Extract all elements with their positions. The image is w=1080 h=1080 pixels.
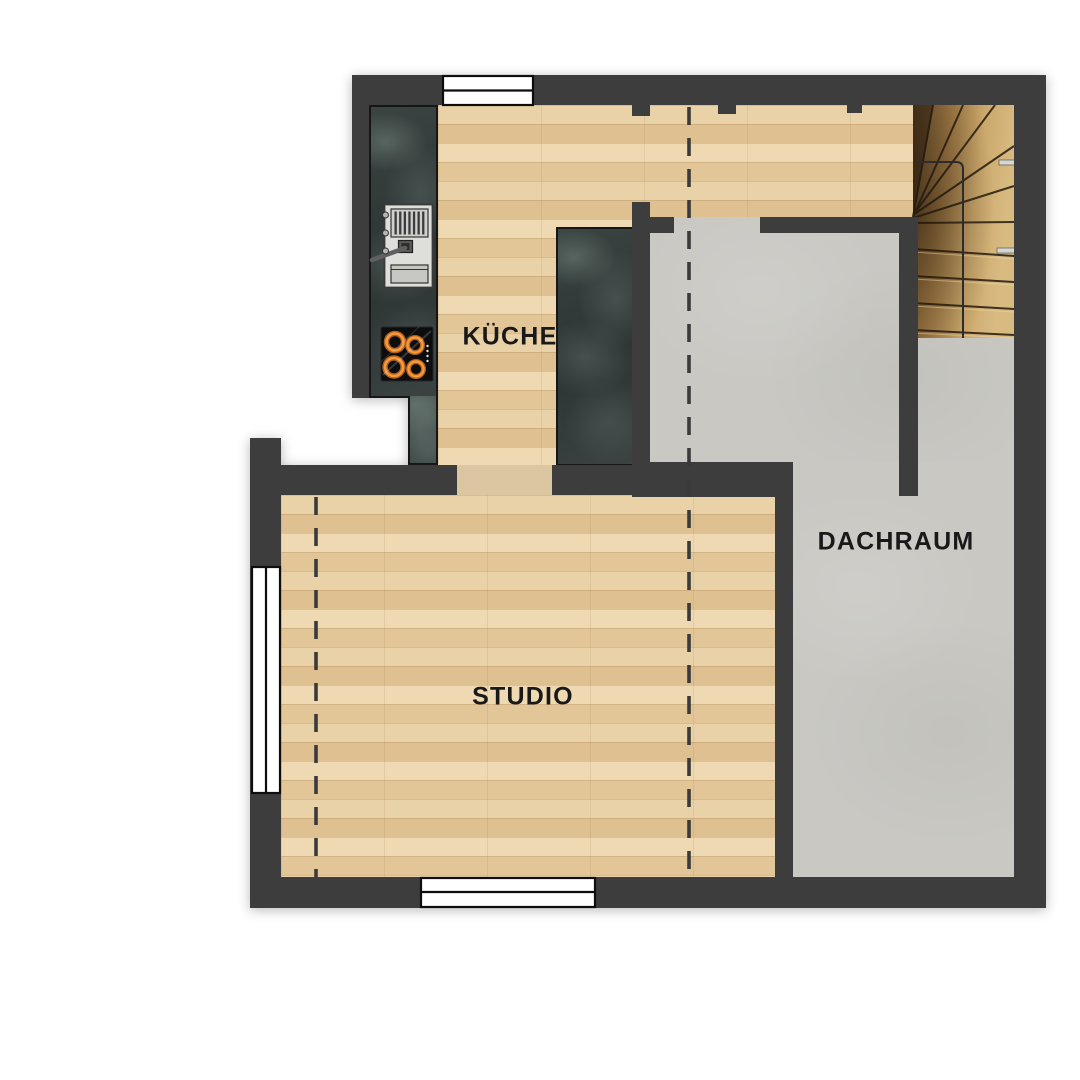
room-label-dachraum: DACHRAUM [818, 528, 975, 557]
cooktop-icon [381, 327, 433, 381]
left-window-icon [252, 567, 280, 793]
top-window-icon [443, 76, 533, 105]
floor-plan: KÜCHE STUDIO DACHRAUM [0, 0, 1080, 1080]
bottom-window-icon [421, 878, 595, 907]
sink-unit-icon [372, 205, 433, 288]
room-label-studio: STUDIO [472, 683, 574, 712]
room-label-kueche: KÜCHE [463, 323, 558, 352]
